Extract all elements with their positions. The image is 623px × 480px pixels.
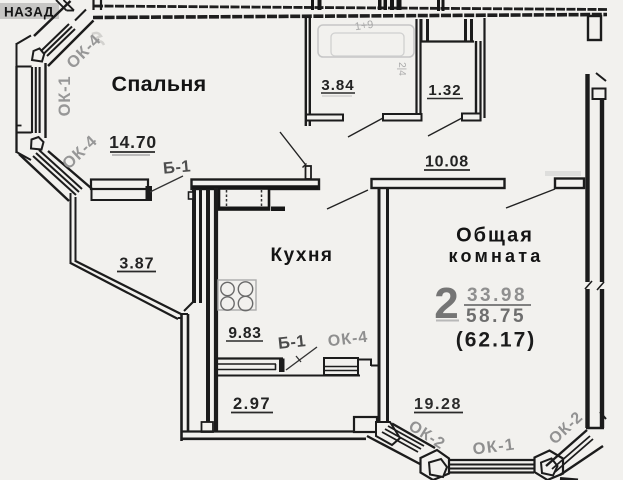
svg-text:2|4: 2|4 <box>396 62 407 76</box>
svg-text:Кухня: Кухня <box>270 245 333 266</box>
svg-text:58.75: 58.75 <box>466 306 526 327</box>
svg-text:14.70: 14.70 <box>109 132 157 152</box>
svg-text:2.97: 2.97 <box>233 395 271 413</box>
svg-text:ОК-1: ОК-1 <box>56 76 74 117</box>
svg-text:1.32: 1.32 <box>428 82 461 99</box>
svg-text:10.08: 10.08 <box>425 154 469 171</box>
svg-text:19.28: 19.28 <box>414 396 462 413</box>
svg-text:Спальня: Спальня <box>112 72 207 96</box>
svg-text:Общая: Общая <box>456 225 534 247</box>
svg-text:Б-1: Б-1 <box>277 332 307 353</box>
svg-text:(62.17): (62.17) <box>456 329 537 352</box>
svg-text:9.83: 9.83 <box>228 325 261 342</box>
svg-text:33.98: 33.98 <box>467 285 527 306</box>
svg-text:3.84: 3.84 <box>321 77 354 94</box>
svg-text:3.87: 3.87 <box>119 256 154 273</box>
svg-text:комната: комната <box>449 246 544 266</box>
svg-text:НАЗАД: НАЗАД <box>4 5 54 20</box>
svg-text:Б-1: Б-1 <box>162 157 191 177</box>
